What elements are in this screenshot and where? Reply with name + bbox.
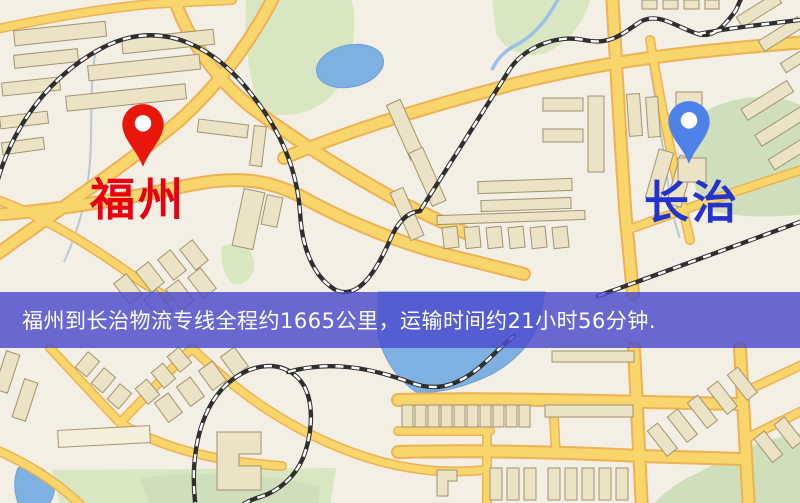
destination-city-label: 长治 [644, 180, 740, 225]
destination-location-pin-icon[interactable] [667, 99, 711, 167]
route-info-banner: 福州到长治物流专线全程约1665公里，运输时间约21小时56分钟. [0, 292, 800, 348]
destination-pin-shape [668, 101, 709, 164]
map-screenshot: 福州 长治 福州到长治物流专线全程约1665公里，运输时间约21小时56分钟. [0, 0, 800, 503]
origin-pin-hole [135, 115, 152, 132]
origin-location-pin-icon[interactable] [121, 103, 165, 169]
map-background [0, 0, 800, 503]
origin-pin-shape [122, 104, 163, 167]
origin-city-label: 福州 [90, 177, 186, 222]
route-info-text: 福州到长治物流专线全程约1665公里，运输时间约21小时56分钟. [0, 305, 656, 335]
destination-pin-hole [681, 112, 698, 129]
